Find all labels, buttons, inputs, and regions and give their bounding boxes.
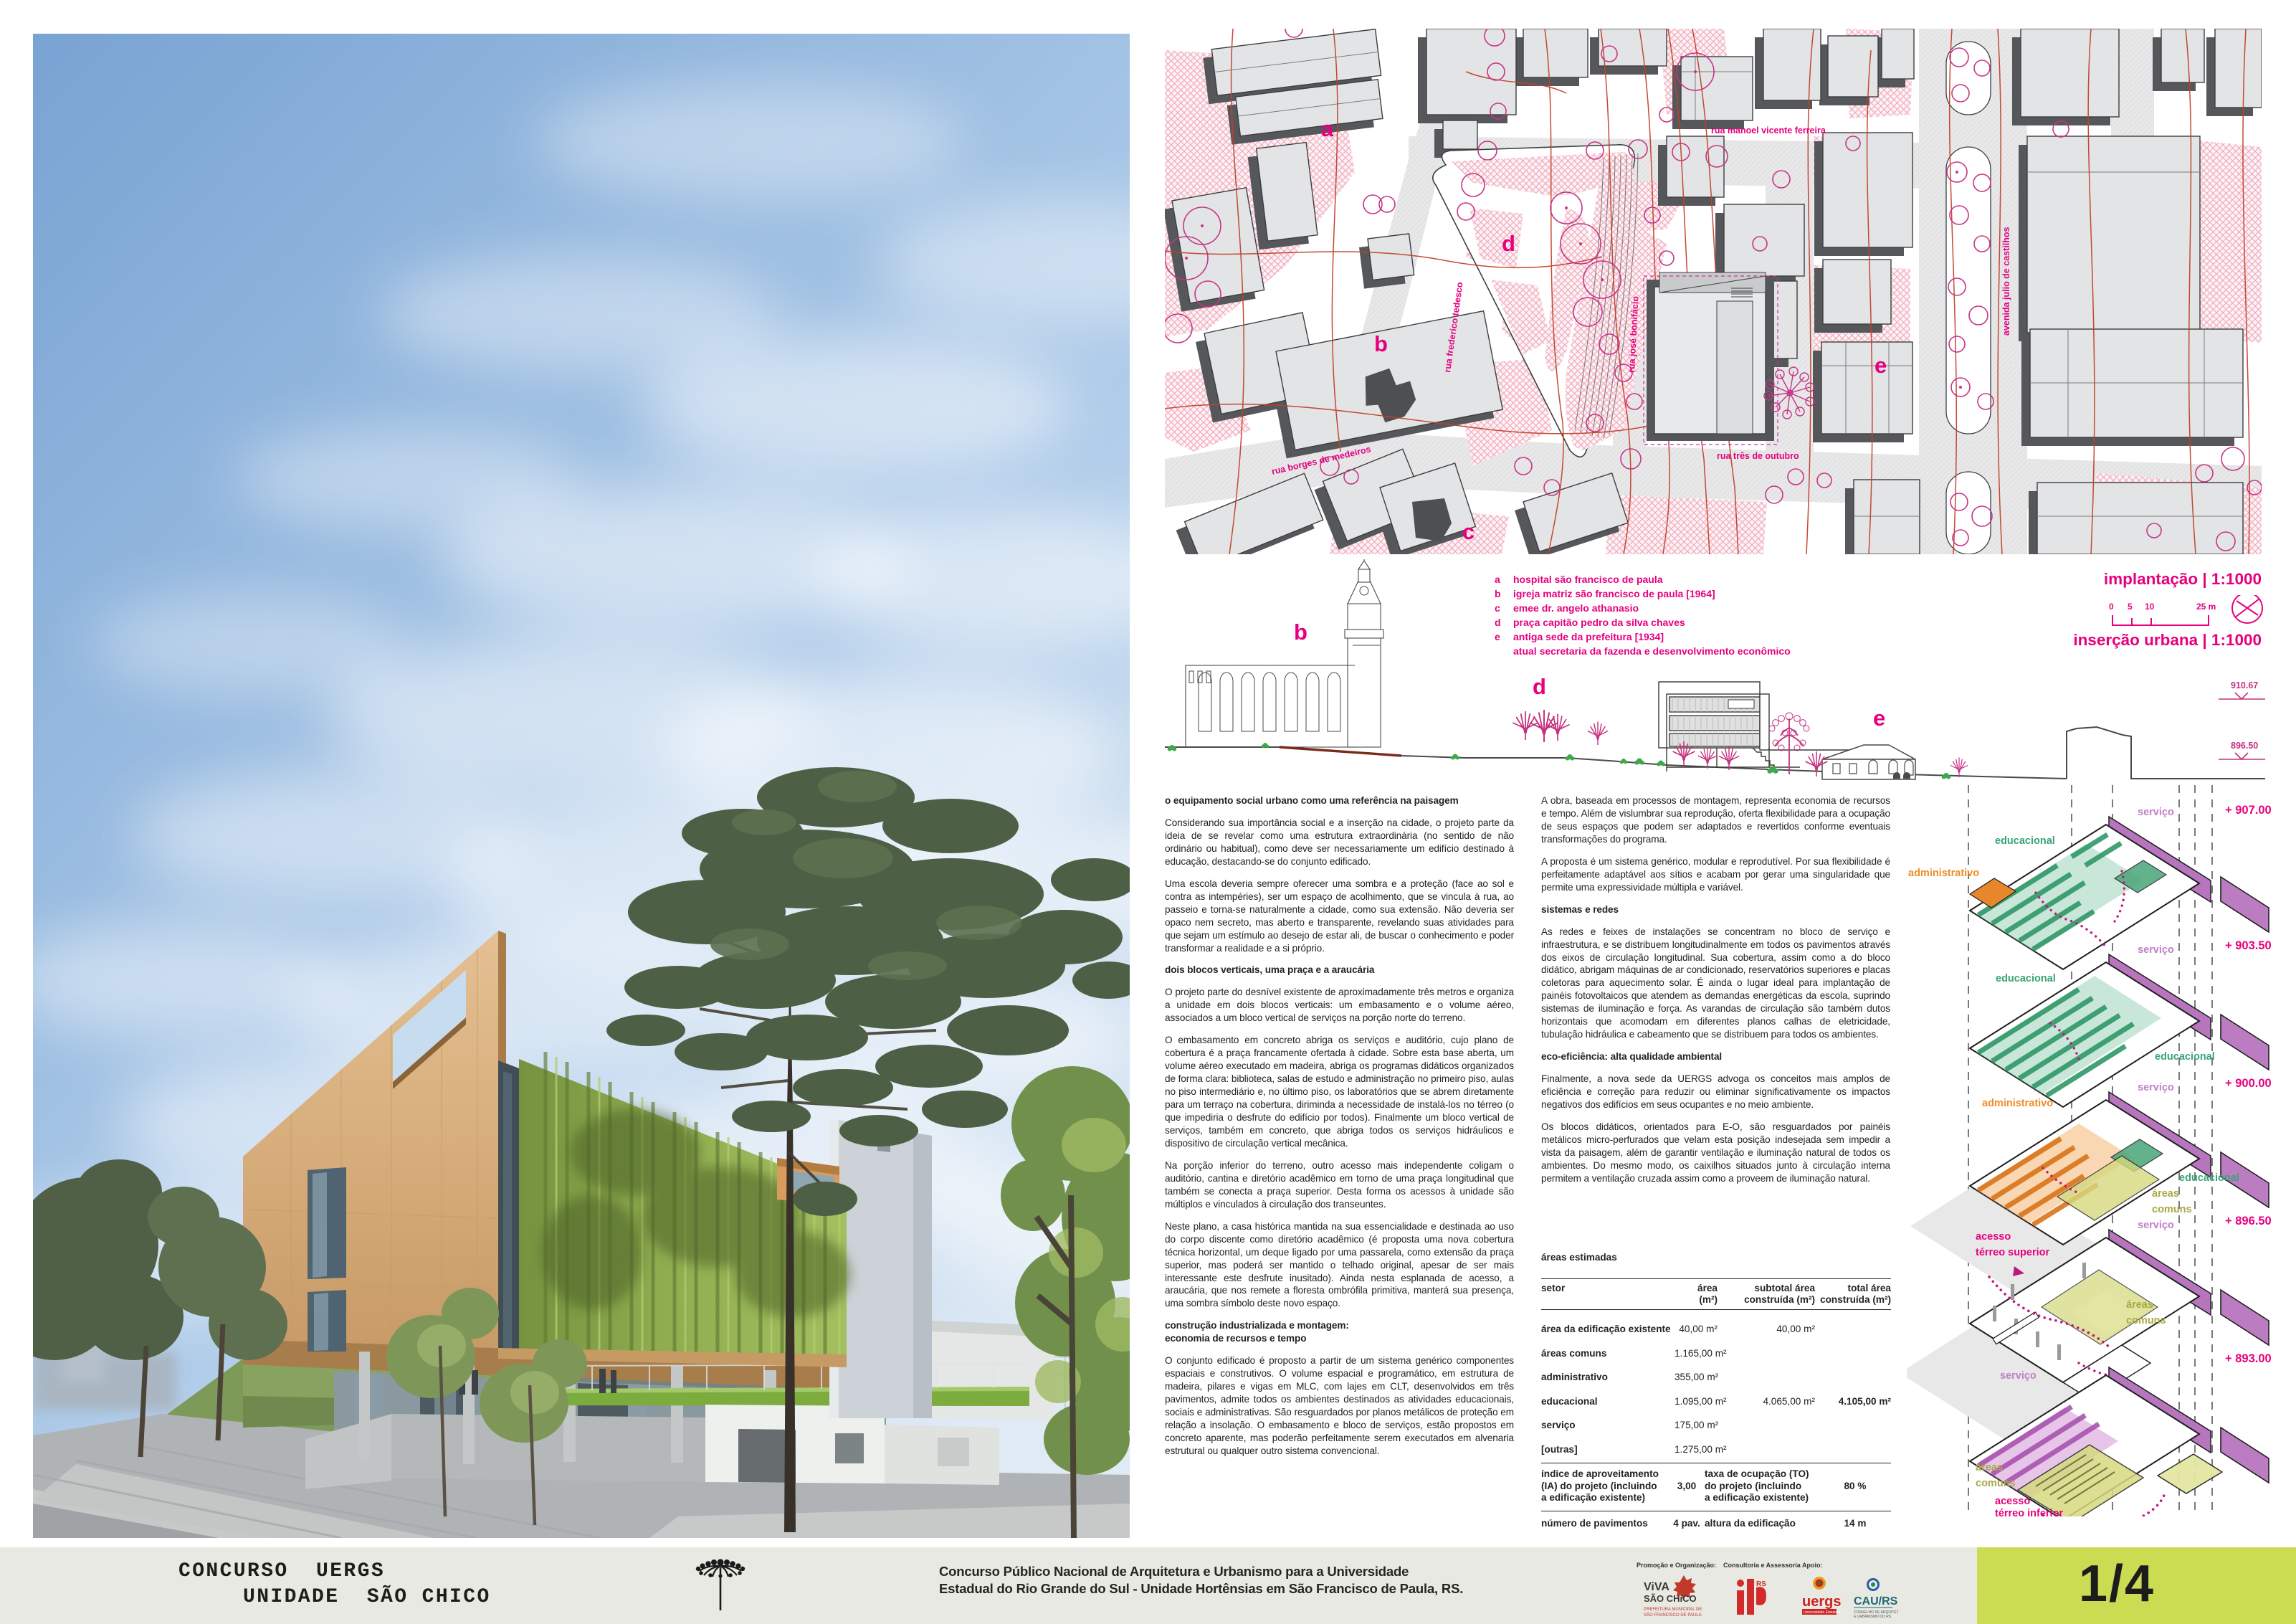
svg-text:térreo inferior: térreo inferior [1995,1508,2063,1516]
svg-text:comuns: comuns [2126,1315,2166,1326]
svg-text:SÃO FRANCISCO DE PAULA: SÃO FRANCISCO DE PAULA [1644,1613,1702,1618]
svg-text:b: b [1294,619,1307,645]
svg-text:educacional: educacional [1995,835,2055,847]
svg-text:acesso: acesso [1995,1496,2030,1507]
svg-text:PREFEITURA MUNICIPAL DE: PREFEITURA MUNICIPAL DE [1644,1608,1702,1612]
svg-text:+ 893.00: + 893.00 [2225,1352,2272,1365]
svg-text:rua três de outubro: rua três de outubro [1717,451,1799,461]
svg-text:serviço: serviço [2138,807,2174,818]
svg-text:serviço: serviço [2138,944,2174,956]
svg-text:c: c [1462,519,1475,544]
svg-text:serviço: serviço [2138,1082,2174,1093]
svg-text:5: 5 [2128,602,2133,612]
svg-text:educacional: educacional [2155,1051,2215,1063]
svg-text:serviço: serviço [2138,1220,2174,1231]
svg-text:administrativo: administrativo [1908,868,1979,879]
svg-text:+ 900.00: + 900.00 [2225,1077,2272,1090]
svg-text:acesso: acesso [1976,1231,2011,1243]
svg-text:+ 903.50: + 903.50 [2225,939,2272,952]
svg-text:CAU/RS: CAU/RS [1854,1595,1898,1608]
svg-text:áreas: áreas [2126,1299,2153,1311]
svg-text:SÃO CHiCO: SÃO CHiCO [1644,1593,1697,1604]
svg-text:+ 907.00: + 907.00 [2225,804,2272,817]
svg-text:serviço: serviço [2000,1370,2037,1382]
svg-text:térreo superior: térreo superior [1976,1247,2049,1258]
svg-text:educacional: educacional [2179,1172,2239,1184]
svg-text:avenida julio de castilhos: avenida julio de castilhos [2001,227,2011,336]
svg-text:E URBANISMO DO RS: E URBANISMO DO RS [1854,1615,1892,1619]
svg-text:Universidade Estadual do RS: Universidade Estadual do RS [1804,1610,1841,1615]
svg-text:educacional: educacional [1996,973,2056,984]
svg-text:a: a [1321,116,1334,141]
svg-text:910.67: 910.67 [2231,680,2258,690]
svg-text:comuns: comuns [1976,1478,2016,1489]
svg-text:+ 896.50: + 896.50 [2225,1215,2272,1228]
svg-text:e: e [1873,706,1885,731]
svg-text:0: 0 [2109,602,2114,612]
svg-text:áreas: áreas [2152,1188,2179,1200]
svg-text:25 m: 25 m [2196,602,2216,612]
svg-text:comuns: comuns [2152,1204,2192,1215]
svg-text:d: d [1533,674,1546,699]
svg-text:RS: RS [1756,1580,1766,1588]
svg-text:e: e [1875,353,1887,378]
svg-text:administrativo: administrativo [1982,1098,2053,1109]
svg-text:d: d [1502,231,1515,256]
svg-text:uergs: uergs [1802,1594,1841,1610]
svg-text:b: b [1374,331,1388,356]
svg-text:ViVA: ViVA [1644,1581,1669,1593]
svg-text:896.50: 896.50 [2231,741,2258,751]
svg-text:rua manoel vicente ferreira: rua manoel vicente ferreira [1711,125,1826,136]
svg-text:áreas: áreas [1976,1462,2003,1473]
svg-text:10: 10 [2145,602,2155,612]
